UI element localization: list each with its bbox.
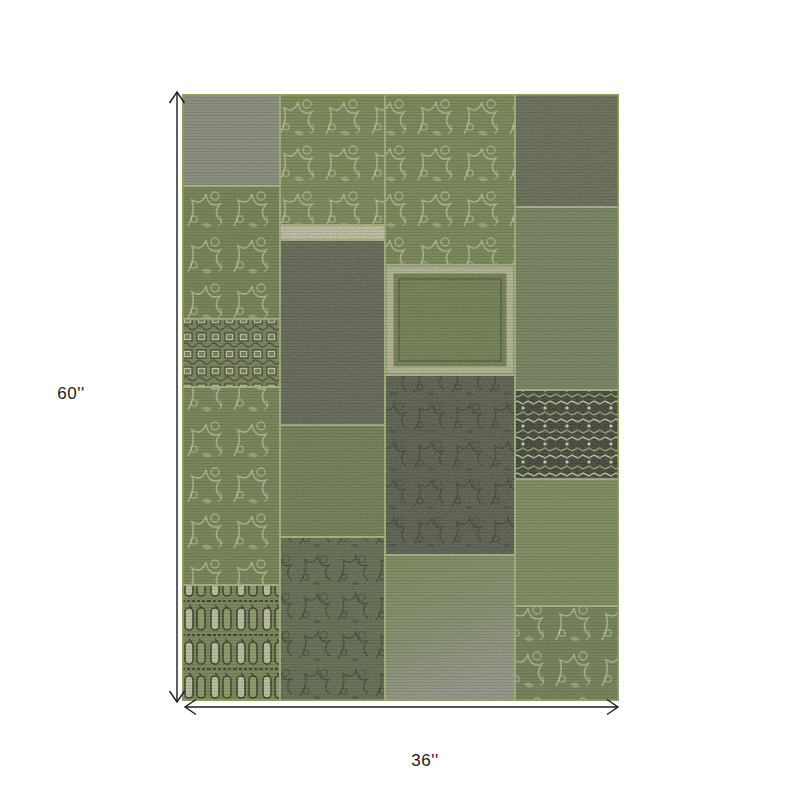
product-dimension-figure: 60'' 36'' (0, 0, 800, 800)
rug-svg (182, 94, 619, 701)
rug-image (182, 94, 619, 701)
height-dimension-label: 60'' (42, 384, 100, 404)
rug-noise-texture (182, 94, 619, 701)
width-dimension-label: 36'' (396, 751, 454, 771)
width-arrow (185, 700, 618, 715)
